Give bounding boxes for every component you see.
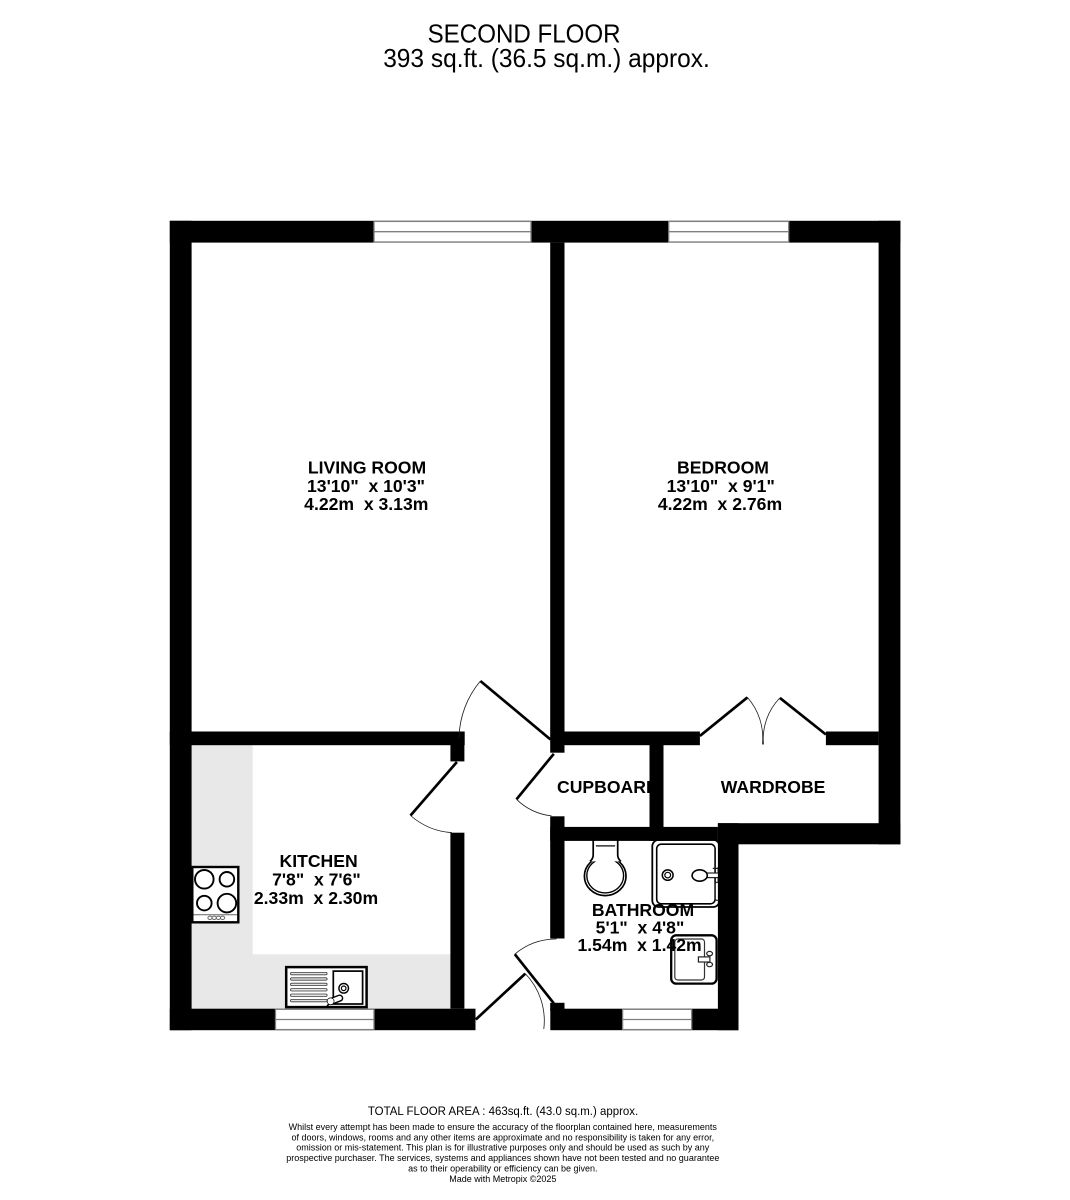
svg-text:7'8" x 7'6": 7'8" x 7'6" [272,869,361,889]
svg-text:BEDROOM: BEDROOM [677,458,769,478]
svg-text:LIVING ROOM: LIVING ROOM [308,458,426,478]
svg-text:1.54m x 1.42m: 1.54m x 1.42m [577,935,701,955]
svg-text:2.33m x 2.30m: 2.33m x 2.30m [254,888,378,908]
svg-text:prospective purchaser. The ser: prospective purchaser. The services, sys… [286,1153,719,1163]
svg-text:WARDROBE: WARDROBE [721,777,826,797]
svg-text:4.22m x 3.13m: 4.22m x 3.13m [304,494,428,514]
svg-text:TOTAL FLOOR AREA : 463sq.ft. (: TOTAL FLOOR AREA : 463sq.ft. (43.0 sq.m.… [368,1104,638,1118]
svg-text:13'10" x 10'3": 13'10" x 10'3" [307,476,425,496]
svg-text:KITCHEN: KITCHEN [279,851,357,871]
svg-text:13'10" x 9'1": 13'10" x 9'1" [667,476,775,496]
svg-text:Whilst every attempt has been: Whilst every attempt has been made to en… [289,1122,718,1132]
svg-text:as to their operability or eff: as to their operability or efficiency ca… [408,1164,597,1174]
svg-text:Made with Metropix ©2025: Made with Metropix ©2025 [449,1174,556,1184]
svg-text:4.22m x 2.76m: 4.22m x 2.76m [658,494,782,514]
svg-text:omission or mis-statement. Thi: omission or mis-statement. This plan is … [296,1143,710,1153]
svg-text:of doors, windows, rooms and a: of doors, windows, rooms and any other i… [291,1132,714,1142]
svg-text:CUPBOARD: CUPBOARD [557,777,659,797]
svg-text:393 sq.ft. (36.5 sq.m.) approx: 393 sq.ft. (36.5 sq.m.) approx. [383,45,710,73]
